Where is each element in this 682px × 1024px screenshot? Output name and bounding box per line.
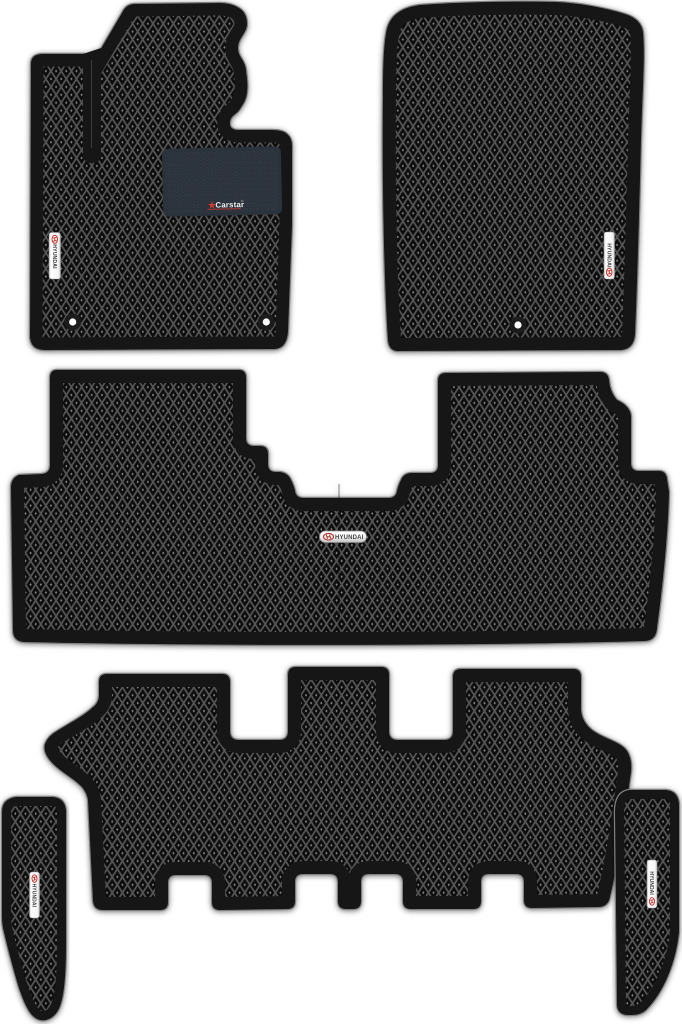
- svg-text:HYUNDAI: HYUNDAI: [605, 243, 611, 268]
- svg-text:HYUNDAI: HYUNDAI: [648, 871, 654, 895]
- svg-text:HYUNDAI: HYUNDAI: [51, 244, 57, 269]
- svg-text:HYUNDAI: HYUNDAI: [335, 535, 364, 541]
- svg-text:HYUNDAI: HYUNDAI: [31, 884, 37, 908]
